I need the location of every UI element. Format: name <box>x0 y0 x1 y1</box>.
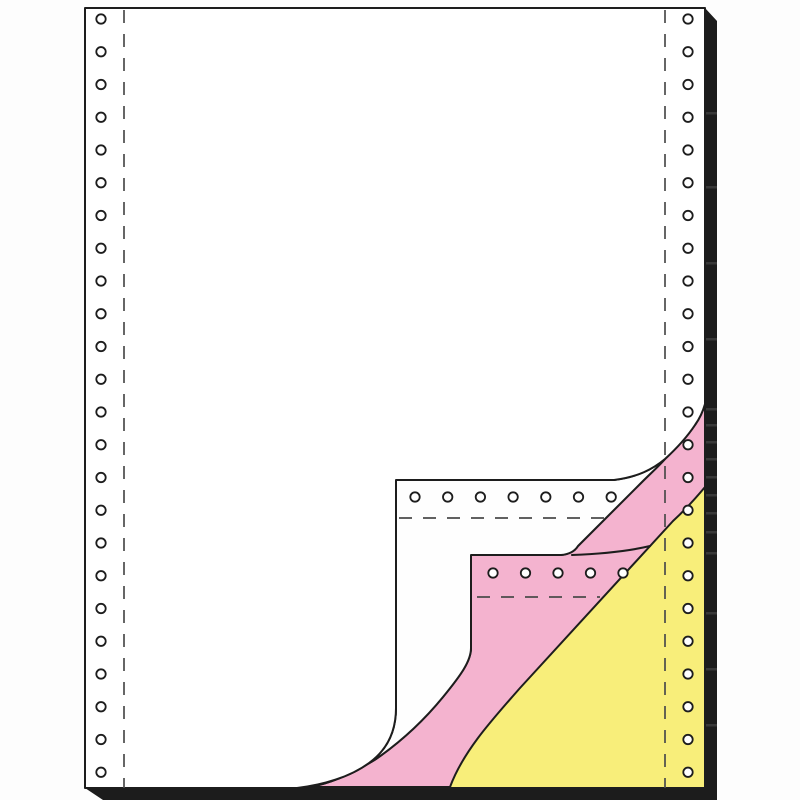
tractor-hole <box>96 473 105 482</box>
tractor-hole <box>574 492 583 501</box>
tractor-hole <box>683 473 692 482</box>
tractor-hole <box>410 492 419 501</box>
shadow-streak <box>705 458 717 461</box>
tractor-hole <box>683 342 692 351</box>
tractor-hole <box>683 211 692 220</box>
shadow-streak <box>705 424 717 427</box>
tractor-hole <box>683 735 692 744</box>
tractor-hole <box>683 702 692 711</box>
tractor-hole <box>586 568 595 577</box>
shadow-streak <box>705 512 717 515</box>
tractor-hole <box>96 604 105 613</box>
tractor-hole <box>96 211 105 220</box>
tractor-hole <box>476 492 485 501</box>
tractor-hole <box>683 145 692 154</box>
shadow-streak <box>705 112 717 115</box>
tractor-hole <box>683 768 692 777</box>
tractor-hole <box>96 113 105 122</box>
tractor-hole <box>96 768 105 777</box>
shadow-streak <box>705 476 717 479</box>
tractor-hole <box>96 80 105 89</box>
tractor-hole <box>96 440 105 449</box>
tractor-hole <box>96 178 105 187</box>
tractor-hole <box>508 492 517 501</box>
shadow-streak <box>705 668 717 671</box>
tractor-hole <box>683 375 692 384</box>
tractor-hole <box>96 276 105 285</box>
tractor-hole <box>683 571 692 580</box>
tractor-hole <box>607 492 616 501</box>
shadow-streak <box>705 612 717 615</box>
tractor-hole <box>443 492 452 501</box>
tractor-hole <box>683 440 692 449</box>
tractor-hole <box>683 538 692 547</box>
tractor-hole <box>683 637 692 646</box>
tractor-hole <box>96 735 105 744</box>
tractor-hole <box>683 407 692 416</box>
tractor-hole <box>96 571 105 580</box>
tractor-hole <box>96 538 105 547</box>
tractor-hole <box>683 113 692 122</box>
tractor-hole <box>96 342 105 351</box>
shadow-streak <box>705 552 717 555</box>
shadow-streak <box>705 408 717 411</box>
tractor-hole <box>96 145 105 154</box>
tractor-hole <box>96 407 105 416</box>
shadow-streak <box>705 338 717 341</box>
tractor-hole <box>96 702 105 711</box>
tractor-hole <box>96 506 105 515</box>
shadow-streak <box>705 262 717 265</box>
shadow-streak <box>705 186 717 189</box>
tractor-hole <box>96 637 105 646</box>
tractor-hole <box>683 604 692 613</box>
shadow-streak <box>705 494 717 497</box>
shadow-streak <box>705 531 717 534</box>
shadow-streak <box>705 724 717 727</box>
tractor-hole <box>683 276 692 285</box>
tractor-hole <box>96 244 105 253</box>
tractor-hole <box>618 568 627 577</box>
product-photo-continuous-paper <box>0 0 800 800</box>
tractor-hole <box>683 178 692 187</box>
continuous-paper-illustration <box>0 0 800 800</box>
tractor-hole <box>488 568 497 577</box>
tractor-hole <box>521 568 530 577</box>
tractor-hole <box>683 506 692 515</box>
tractor-hole <box>683 14 692 23</box>
tractor-hole <box>96 47 105 56</box>
tractor-hole <box>683 47 692 56</box>
tractor-hole <box>96 14 105 23</box>
tractor-hole <box>683 309 692 318</box>
tractor-hole <box>96 375 105 384</box>
tractor-hole <box>553 568 562 577</box>
tractor-hole <box>683 244 692 253</box>
tractor-hole <box>96 309 105 318</box>
shadow-streak <box>705 441 717 444</box>
tractor-hole <box>683 669 692 678</box>
tractor-hole <box>683 80 692 89</box>
tractor-hole <box>96 669 105 678</box>
tractor-hole <box>541 492 550 501</box>
